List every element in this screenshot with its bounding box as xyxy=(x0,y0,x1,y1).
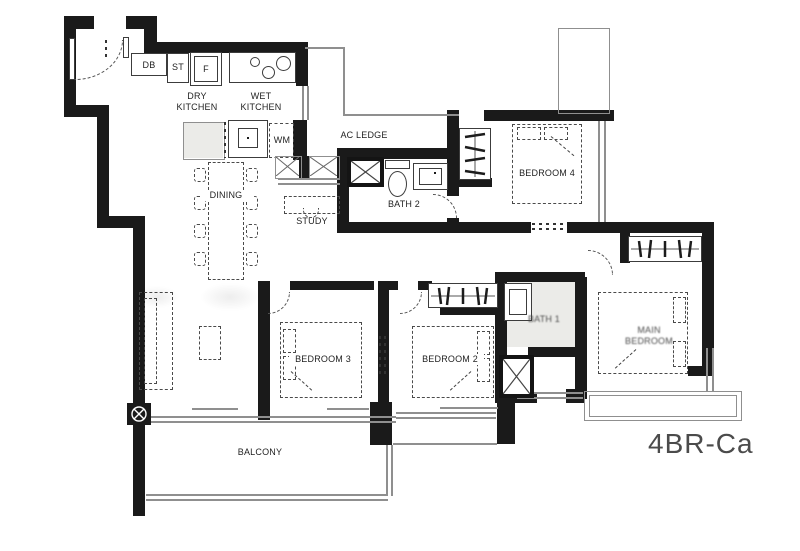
kitchen-window xyxy=(302,86,304,120)
wall-segment xyxy=(497,398,515,444)
counter-hatch xyxy=(224,122,226,158)
bed-pillow xyxy=(517,127,541,140)
dry-kitchen-label: DRY KITCHEN xyxy=(172,91,222,113)
toilet-bowl-icon xyxy=(388,171,407,197)
wall-segment xyxy=(64,16,94,29)
planter-outline xyxy=(589,395,737,417)
planter-outline xyxy=(712,348,714,392)
x-hatch-icon xyxy=(351,161,380,183)
dining-chair xyxy=(246,252,258,266)
dining-chair xyxy=(246,224,258,238)
bedroom3-hatch xyxy=(379,336,381,378)
wall-segment xyxy=(505,272,585,282)
dining-chair xyxy=(194,168,206,182)
upper-ledge-outline xyxy=(558,28,610,114)
main-bedroom-label: MAIN BEDROOM xyxy=(618,325,680,347)
stove-burner-icon xyxy=(276,56,291,71)
bath2-label: BATH 2 xyxy=(379,199,429,210)
ac-ledge-label: AC LEDGE xyxy=(334,130,394,141)
wall-segment xyxy=(290,281,374,290)
toilet-tank xyxy=(385,160,410,169)
stove-burner-icon xyxy=(250,57,260,67)
bedroom2-label: BEDROOM 2 xyxy=(416,354,484,365)
wall-segment xyxy=(345,222,459,233)
balcony-rail xyxy=(391,445,393,496)
balcony-rail xyxy=(386,445,388,496)
island-counter-edge xyxy=(183,122,225,160)
entry-door-leaf xyxy=(105,40,107,60)
wall-segment xyxy=(126,16,144,29)
bedroom2-window xyxy=(396,417,496,419)
watermark-remnant xyxy=(135,286,179,308)
balcony-label: BALCONY xyxy=(228,447,292,458)
dining-chair xyxy=(194,224,206,238)
balcony-door-line xyxy=(146,416,396,418)
wall-segment xyxy=(688,366,714,376)
dining-chair xyxy=(194,252,206,266)
dining-chair xyxy=(246,168,258,182)
bedroom3-door-swing-icon xyxy=(268,292,290,314)
wall-segment xyxy=(97,105,109,228)
watermark-remnant xyxy=(200,283,260,311)
hanger-rail-icon xyxy=(460,129,490,179)
x-hatch-icon xyxy=(503,359,530,394)
dining-table xyxy=(208,162,244,280)
bath1-label: BATH 1 xyxy=(520,314,568,325)
bedroom3-label: BEDROOM 3 xyxy=(289,354,357,365)
bedroom4-label: BEDROOM 4 xyxy=(513,168,581,179)
bath2-door-swing-icon xyxy=(433,194,457,218)
entry-door-swing-icon xyxy=(75,40,123,80)
dining-label: DINING xyxy=(200,190,252,201)
bath2-sink-basin xyxy=(419,168,442,185)
balcony-door-line xyxy=(327,408,369,410)
bedroom2-wardrobe xyxy=(428,283,498,308)
wall-segment xyxy=(575,277,587,399)
study-window xyxy=(278,183,340,185)
balcony-rail xyxy=(146,494,388,496)
wall-segment xyxy=(447,222,531,233)
stove-burner-icon xyxy=(262,66,275,79)
balcony-door-line xyxy=(192,408,238,410)
bedroom4-wardrobe xyxy=(459,128,491,180)
service-shaft xyxy=(347,157,384,187)
ac-ledge-outline xyxy=(343,47,345,116)
study-label: STUDY xyxy=(287,216,337,227)
ac-ledge-outline xyxy=(343,114,459,116)
balcony-door-line xyxy=(146,421,396,423)
fridge-label: F xyxy=(188,64,224,75)
bed-pillow xyxy=(283,329,296,353)
bedroom2-window xyxy=(396,412,496,414)
circle-x-icon xyxy=(127,403,151,425)
bed-pillow xyxy=(673,297,686,323)
wall-segment xyxy=(567,222,714,233)
bed-pillow xyxy=(544,127,568,140)
ac-ledge-outline xyxy=(305,47,344,49)
service-shaft xyxy=(499,355,534,398)
hanger-rail-icon xyxy=(629,237,701,261)
wall-segment xyxy=(370,402,392,445)
wm-label: WM xyxy=(264,135,300,146)
wet-kitchen-label: WET KITCHEN xyxy=(236,91,286,113)
kitchen-window xyxy=(307,86,309,120)
ac-unit-box xyxy=(309,156,340,179)
bath1-sink-basin xyxy=(509,289,527,315)
bedroom2-door-swing-icon xyxy=(400,292,422,314)
ledge-line xyxy=(393,443,497,445)
door-post xyxy=(123,37,129,58)
bedroom2-window xyxy=(440,407,498,409)
ac-unit-box xyxy=(275,156,302,179)
planter-outline xyxy=(706,348,708,392)
x-hatch-icon xyxy=(310,157,337,176)
sink-tap-dot xyxy=(434,172,436,174)
balcony-rail xyxy=(146,499,388,501)
sink-tap-dot xyxy=(247,137,249,139)
bedroom4-sill-hatch xyxy=(532,223,566,225)
hanger-rail-icon xyxy=(429,284,497,307)
bedroom4-window xyxy=(604,121,606,222)
bedroom3-hatch xyxy=(384,336,386,378)
wall-segment xyxy=(378,281,398,290)
hose-reel-marker xyxy=(127,403,151,425)
x-hatch-icon xyxy=(276,157,299,176)
bedroom4-window xyxy=(598,121,600,222)
coffee-table xyxy=(199,326,221,360)
main-bedroom-wardrobe xyxy=(628,236,702,262)
main-bedroom-door-swing-icon xyxy=(588,250,613,275)
bed-pillow xyxy=(477,331,490,355)
floor-plan: DB ST F DRY KITCHEN WET KITCHEN WM AC LE… xyxy=(0,0,800,551)
plan-code: 4BR-Ca xyxy=(648,428,754,460)
bedroom4-sill-hatch xyxy=(532,228,566,230)
wall-segment xyxy=(447,110,459,196)
sofa-cushions xyxy=(144,298,157,384)
